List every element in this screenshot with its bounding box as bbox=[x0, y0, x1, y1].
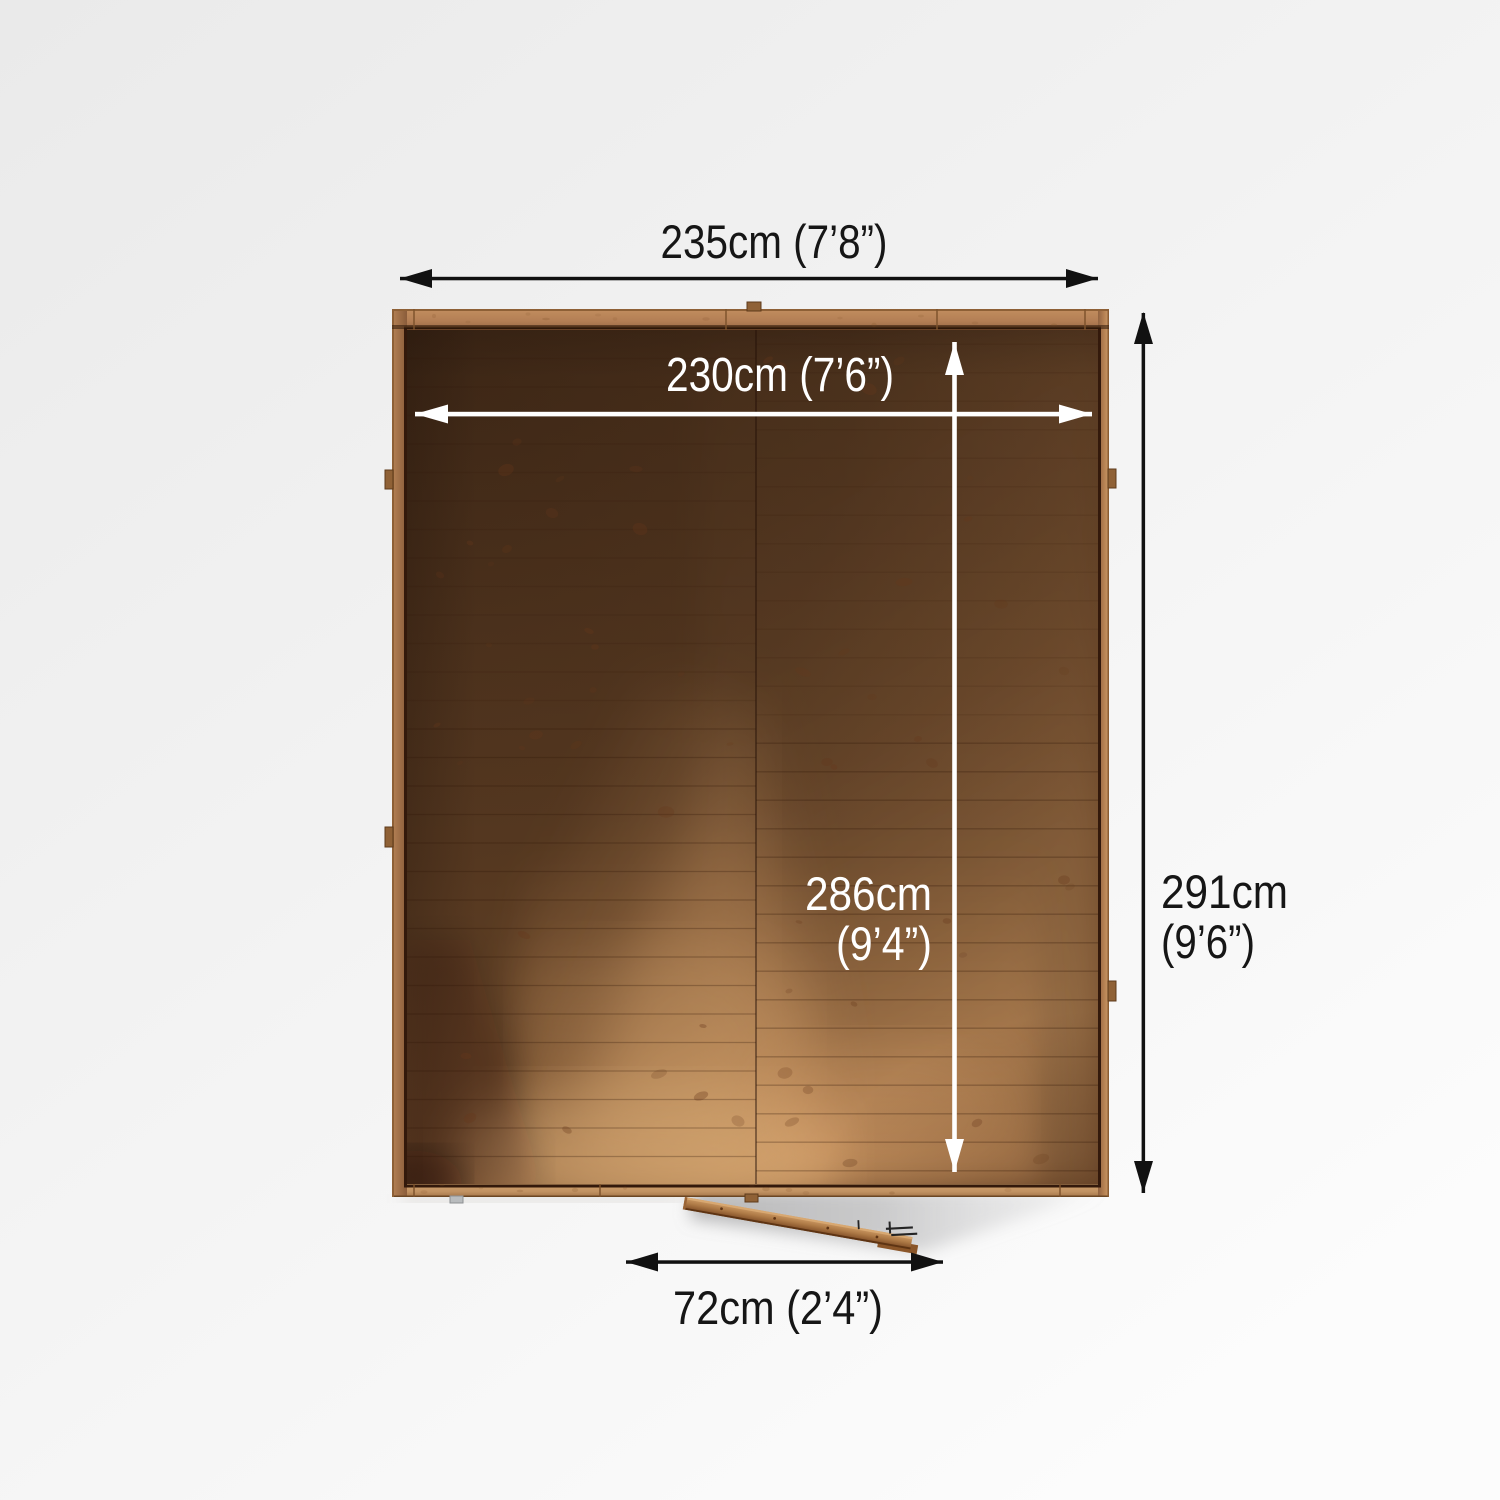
svg-text:(9’4”): (9’4”) bbox=[836, 917, 932, 970]
svg-text:235cm (7’8”): 235cm (7’8”) bbox=[661, 215, 888, 268]
svg-text:72cm (2’4”): 72cm (2’4”) bbox=[673, 1281, 883, 1334]
svg-text:286cm: 286cm bbox=[805, 867, 932, 920]
svg-text:(9’6”): (9’6”) bbox=[1161, 915, 1255, 968]
svg-text:291cm: 291cm bbox=[1161, 865, 1288, 918]
svg-text:230cm (7’6”): 230cm (7’6”) bbox=[666, 349, 894, 402]
